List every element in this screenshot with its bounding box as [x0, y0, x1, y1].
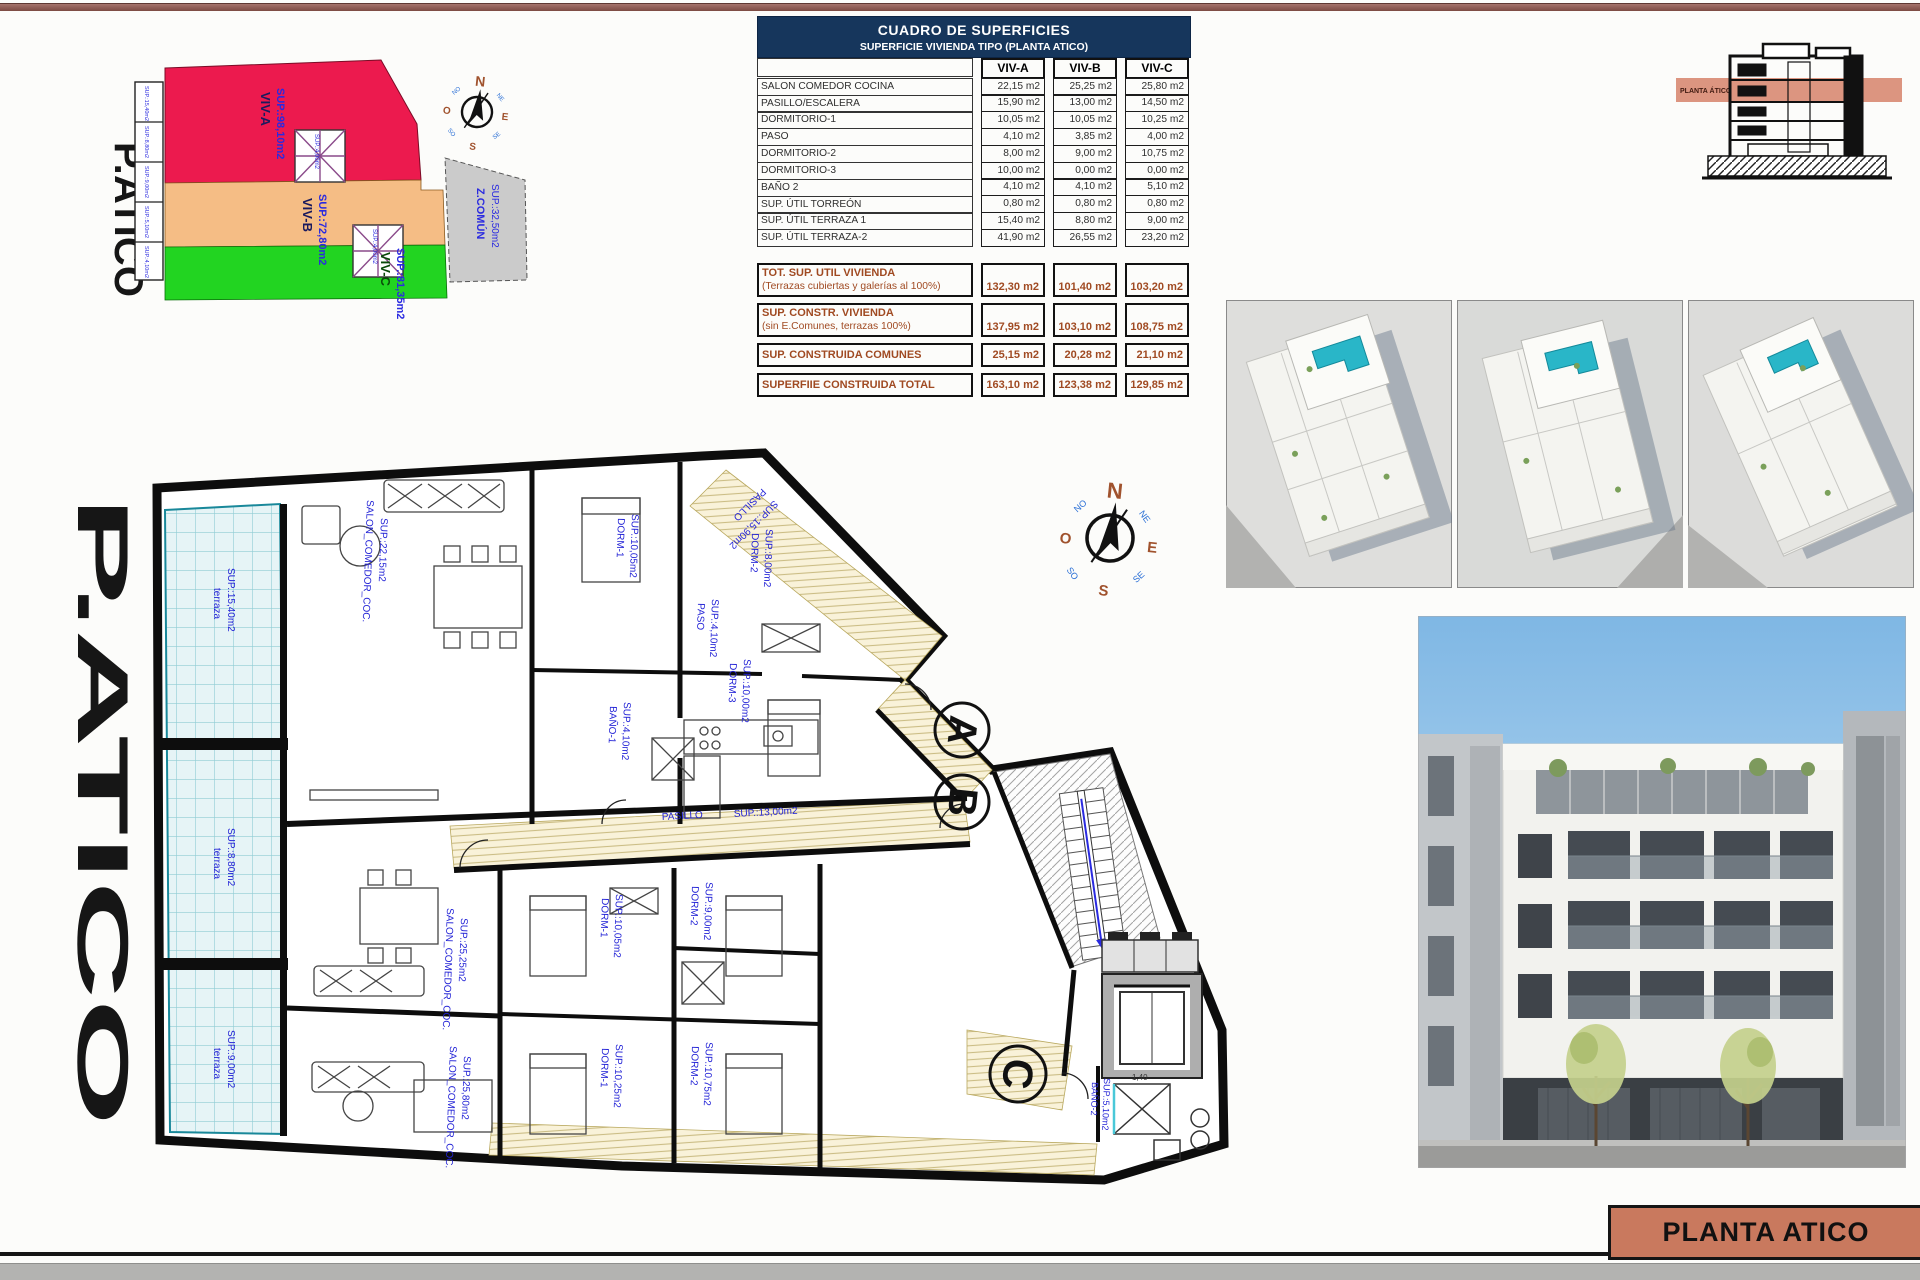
svg-text:SUP.:10,00m2: SUP.:10,00m2 [739, 659, 752, 724]
svg-text:SE: SE [492, 131, 502, 141]
svg-text:VIV-B: VIV-B [300, 198, 315, 232]
footer-rule [0, 1252, 1612, 1256]
svg-text:SUP.:5,10m2: SUP.:5,10m2 [143, 206, 149, 238]
svg-text:SUP.:15,40m2: SUP.:15,40m2 [143, 86, 149, 121]
svg-text:DORM-1: DORM-1 [614, 518, 626, 558]
col-viv-a: VIV-A [981, 58, 1045, 79]
svg-text:DORM-2: DORM-2 [688, 1046, 700, 1086]
svg-text:terraza: terraza [211, 848, 222, 880]
svg-text:PASO: PASO [694, 603, 706, 631]
street [1418, 1140, 1906, 1168]
summary-row-total: SUPERFIIE CONSTRUIDA TOTAL 163,10 m2 123… [757, 373, 1191, 397]
plan-sheet: P.ATICO SUP.:15,40m2 SUP.:8,80m2 SUP.:9,… [0, 0, 1920, 1280]
svg-text:C: C [993, 1056, 1043, 1091]
table-row-label: DORMITORIO-3 [757, 162, 973, 180]
neighbor-building-left [1418, 734, 1503, 1154]
svg-text:SUP.:10,75m2: SUP.:10,75m2 [701, 1042, 714, 1107]
render-3d-strip [1226, 300, 1914, 588]
sheet-bottom-bar [0, 1263, 1920, 1280]
svg-text:A: A [939, 713, 986, 746]
section-linework [1702, 44, 1892, 178]
svg-text:SUP.:15,40m2: SUP.:15,40m2 [225, 568, 236, 632]
site-key-plan: P.ATICO SUP.:15,40m2 SUP.:8,80m2 SUP.:9,… [85, 30, 560, 360]
table-row-label: SUP. ÚTIL TERRAZA 1 [757, 212, 973, 230]
svg-text:DORM-3: DORM-3 [726, 663, 738, 703]
svg-text:SUP.:8,80m2: SUP.:8,80m2 [143, 126, 149, 158]
table-row-label: BAÑO 2 [757, 179, 973, 197]
section-band-label: PLANTA ÁTICO [1680, 86, 1732, 95]
svg-text:SUP.:81,35m2: SUP.:81,35m2 [394, 248, 406, 319]
svg-text:N: N [1106, 477, 1124, 504]
svg-text:SUP.:25,25m2: SUP.:25,25m2 [456, 918, 469, 983]
table-row-label: PASILLO/ESCALERA [757, 95, 973, 113]
surface-table-subtitle: SUPERFICIE VIVIENDA TIPO (PLANTA ATICO) [760, 41, 1188, 53]
svg-text:terraza: terraza [211, 1048, 222, 1080]
svg-text:SE: SE [1131, 569, 1147, 584]
svg-text:SUP.:10,25m2: SUP.:10,25m2 [611, 1044, 624, 1109]
site-terrace-strip: SUP.:15,40m2 SUP.:8,80m2 SUP.:9,00m2 SUP… [135, 82, 163, 280]
surface-table-header: CUADRO DE SUPERFICIES SUPERFICIE VIVIEND… [757, 16, 1191, 58]
render-3d-view-1 [1226, 300, 1452, 588]
summary-row-constr: SUP. CONSTR. VIVIENDA (sin E.Comunes, te… [757, 303, 1191, 337]
svg-text:SUP.:8,00m2: SUP.:8,00m2 [761, 529, 774, 588]
table-row-label: SUP. ÚTIL TORREÓN [757, 196, 973, 214]
svg-text:SUP.:8,80m2: SUP.:8,80m2 [225, 828, 236, 887]
svg-text:SO: SO [446, 128, 456, 139]
svg-text:S: S [1098, 582, 1110, 600]
main-floor-plan: P.ATICO terraza SUP.:15,40m2 terraza SUP… [62, 418, 1247, 1218]
svg-text:1,40: 1,40 [1132, 1073, 1148, 1082]
svg-text:NE: NE [495, 93, 505, 103]
svg-text:terraza: terraza [211, 588, 222, 620]
svg-text:DORM-2: DORM-2 [688, 886, 700, 926]
svg-text:SUP.:72,80m2: SUP.:72,80m2 [316, 194, 328, 265]
svg-text:O: O [442, 105, 451, 117]
neighbor-building-right [1843, 711, 1906, 1154]
table-row-label: DORMITORIO-2 [757, 145, 973, 163]
render-3d-view-2 [1457, 300, 1683, 588]
svg-text:SUP.:4,00m2: SUP.:4,00m2 [371, 229, 377, 265]
svg-text:SUP.:22,15m2: SUP.:22,15m2 [376, 518, 389, 583]
svg-text:SUP.:10,05m2: SUP.:10,05m2 [627, 514, 640, 579]
svg-text:E: E [1146, 539, 1158, 557]
table-corner-cell [757, 58, 973, 77]
svg-text:BAÑO-1: BAÑO-1 [606, 706, 620, 744]
svg-text:SUP.:98,10m2: SUP.:98,10m2 [274, 88, 286, 159]
surface-table: CUADRO DE SUPERFICIES SUPERFICIE VIVIEND… [757, 16, 1191, 397]
surface-table-title: CUADRO DE SUPERFICIES [760, 22, 1188, 38]
svg-text:O: O [1059, 530, 1073, 548]
svg-text:BAÑO-2: BAÑO-2 [1089, 1082, 1100, 1116]
site-compass: N S E O NE NO SE SO [439, 70, 513, 156]
svg-text:SO: SO [1065, 565, 1081, 581]
summary-row-util: TOT. SUP. UTIL VIVIENDA (Terrazas cubier… [757, 263, 1191, 297]
svg-text:NE: NE [1137, 509, 1152, 525]
col-viv-c: VIV-C [1125, 58, 1189, 79]
sheet-top-rule [0, 3, 1920, 11]
side-windows [1518, 834, 1552, 1018]
main-building [1503, 744, 1843, 1146]
table-row-label: DORMITORIO-1 [757, 111, 973, 129]
tiled-terrace: terraza SUP.:15,40m2 terraza SUP.:8,80m2… [162, 504, 288, 1136]
table-row-label: SUP. ÚTIL TERRAZA-2 [757, 229, 973, 247]
col-viv-b: VIV-B [1053, 58, 1117, 79]
svg-text:SUP.:4,00m2: SUP.:4,00m2 [313, 134, 319, 170]
svg-text:PASILLO: PASILLO [662, 810, 704, 823]
svg-text:SUP.:5,10m2: SUP.:5,10m2 [1100, 1078, 1112, 1131]
svg-text:DORM-1: DORM-1 [598, 898, 610, 938]
svg-text:S: S [469, 141, 477, 153]
svg-text:NO: NO [451, 86, 462, 97]
svg-text:B: B [939, 785, 986, 818]
plan-floor-label: P.ATICO [62, 496, 142, 1126]
svg-text:DORM-2: DORM-2 [748, 533, 760, 573]
svg-text:SUP.:10,05m2: SUP.:10,05m2 [611, 894, 624, 959]
svg-text:SUP.:9,00m2: SUP.:9,00m2 [701, 882, 714, 941]
svg-text:SUP.:4,10m2: SUP.:4,10m2 [619, 702, 632, 761]
svg-text:E: E [501, 112, 509, 124]
summary-row-comunes: SUP. CONSTRUIDA COMUNES 25,15 m2 20,28 m… [757, 343, 1191, 367]
surface-table-grid: VIV-A VIV-B VIV-C SALON COMEDOR COCINA 2… [757, 60, 1191, 247]
svg-text:VIV-C: VIV-C [378, 252, 393, 287]
svg-text:N: N [474, 73, 486, 90]
svg-text:SUP.:4,10m2: SUP.:4,10m2 [143, 246, 149, 278]
elevator [1102, 932, 1202, 1078]
render-3d-view-3 [1688, 300, 1914, 588]
svg-text:SUP.:25,80m2: SUP.:25,80m2 [459, 1056, 472, 1121]
table-row-label: PASO [757, 128, 973, 146]
facade-render [1418, 616, 1906, 1168]
table-row-label: SALON COMEDOR COCINA [757, 78, 973, 96]
site-zone-viv-a [165, 60, 421, 183]
svg-text:SUP.:4,10m2: SUP.:4,10m2 [707, 599, 720, 658]
site-core-1 [295, 130, 345, 182]
svg-text:VIV-A: VIV-A [258, 92, 273, 127]
window-bands [1568, 831, 1833, 1019]
building-section-sketch: PLANTA ÁTICO [1668, 26, 1908, 194]
svg-text:SUP.:9,00m2: SUP.:9,00m2 [143, 166, 149, 198]
title-block-label: PLANTA ATICO [1663, 1217, 1870, 1248]
svg-text:SUP.:32,50m2: SUP.:32,50m2 [489, 184, 500, 248]
title-block: PLANTA ATICO [1608, 1205, 1920, 1260]
plan-compass: N S E O NE NO SE SO [1054, 473, 1164, 605]
svg-text:Z.COMÚN: Z.COMÚN [474, 188, 487, 239]
svg-text:DORM-1: DORM-1 [598, 1048, 610, 1088]
svg-text:NO: NO [1072, 498, 1089, 514]
svg-text:SUP.:9,00m2: SUP.:9,00m2 [225, 1030, 236, 1089]
